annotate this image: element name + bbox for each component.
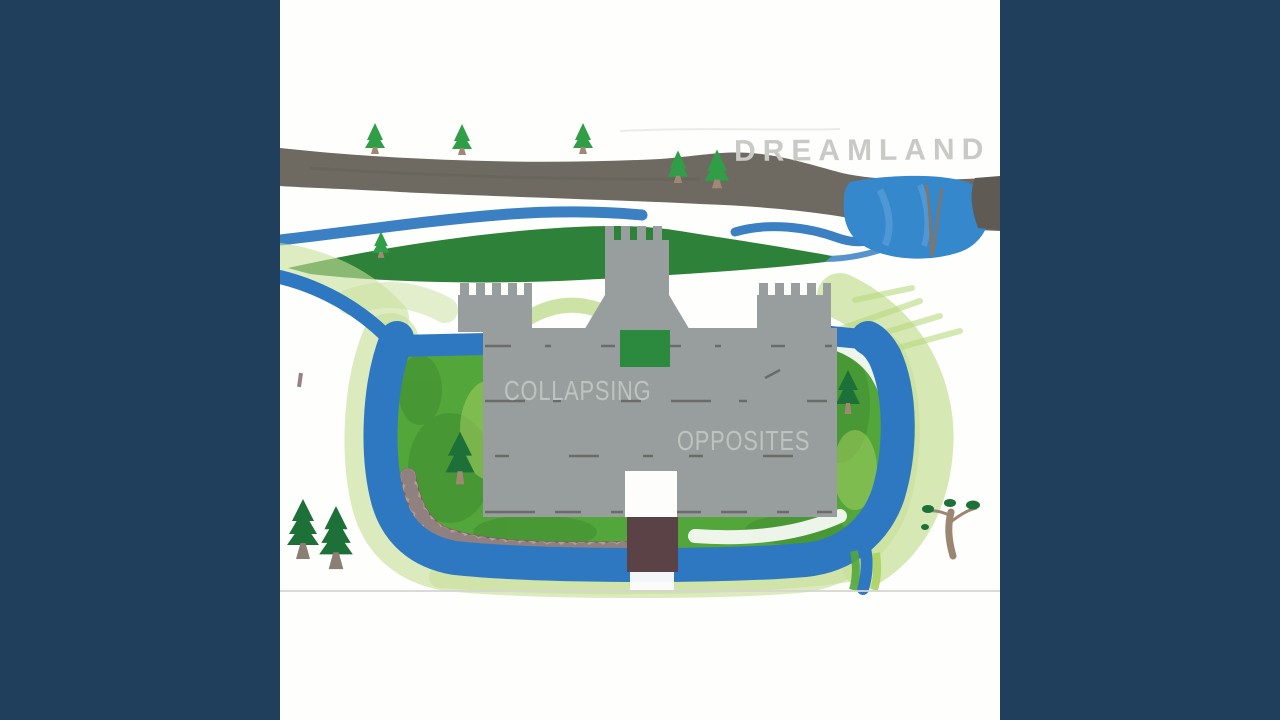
outflow-bank	[853, 551, 856, 590]
outflow-stream	[863, 548, 867, 589]
band-name-line2: OPPOSITES	[677, 427, 810, 455]
castle-window	[620, 330, 670, 367]
video-frame: DREAMLAND COLLAPSING OPPOSITES	[0, 0, 1280, 720]
gate-walkway	[630, 570, 674, 590]
album-cover: DREAMLAND COLLAPSING OPPOSITES	[280, 0, 1000, 720]
drawbridge	[627, 517, 678, 572]
outflow-bank	[874, 553, 877, 590]
band-name-line1: COLLAPSING	[504, 377, 651, 405]
map-title-text: DREAMLAND	[734, 135, 991, 167]
dreamland-map-painting	[280, 0, 1000, 720]
castle-gate	[625, 471, 677, 517]
